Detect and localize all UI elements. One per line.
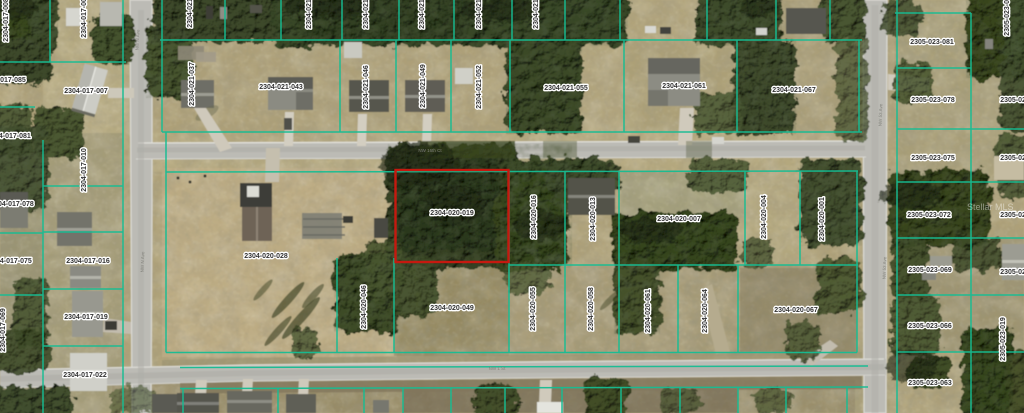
svg-text:2305-023-066: 2305-023-066 [908,323,952,330]
svg-text:NW 16th Ct: NW 16th Ct [418,148,442,153]
svg-text:2305-023-072: 2305-023-072 [907,212,951,219]
svg-text:2305-023-013: 2305-023-013 [1000,212,1024,219]
svg-text:2305-023-075: 2305-023-075 [911,155,955,162]
svg-text:2304-021-012: 2304-021-012 [306,0,313,29]
svg-text:2304-017-022: 2304-017-022 [63,372,107,379]
svg-text:NW 1 St: NW 1 St [489,366,507,371]
svg-text:2304-017-069: 2304-017-069 [0,308,7,352]
svg-text:2304-020-067: 2304-020-067 [774,307,818,314]
svg-text:2304-017-075: 2304-017-075 [0,258,32,265]
svg-text:2304-020-058: 2304-020-058 [588,287,595,331]
svg-text:2304-021-061: 2304-021-061 [662,83,706,90]
svg-text:2304-021-037: 2304-021-037 [189,62,196,106]
svg-text:2304-020-049: 2304-020-049 [430,305,474,312]
svg-text:2305-023-084: 2305-023-084 [1004,0,1011,36]
svg-text:2304-017-004: 2304-017-004 [81,0,88,38]
svg-text:2304-017-016: 2304-017-016 [66,258,110,265]
svg-text:NW N Ave: NW N Ave [140,251,146,272]
svg-text:2304-021-043: 2304-021-043 [259,84,303,91]
svg-text:2304-020-001: 2304-020-001 [819,197,826,241]
svg-text:2304-020-046: 2304-020-046 [361,285,368,329]
svg-text:NW 53 Ave: NW 53 Ave [882,256,888,279]
svg-text:2305-023-091: 2305-023-091 [1000,97,1024,104]
svg-text:2304-020-028: 2304-020-028 [244,253,288,260]
svg-text:2304-021-015: 2304-021-015 [363,0,370,29]
svg-text:2304-021-055: 2304-021-055 [544,85,588,92]
svg-text:2304-020-055: 2304-020-055 [530,287,537,331]
svg-text:2304-021-046: 2304-021-046 [363,65,370,109]
svg-text:2304-021-067: 2304-021-067 [772,87,816,94]
svg-text:2305-023-078: 2305-023-078 [911,97,955,104]
svg-text:2304-021-027: 2304-021-027 [187,0,194,28]
svg-text:NW 53 Ave: NW 53 Ave [878,103,884,126]
svg-text:2305-023-019: 2305-023-019 [1000,317,1007,361]
svg-text:2304-017-007: 2304-017-007 [64,88,108,95]
svg-text:2304-021-052: 2304-021-052 [476,65,483,109]
svg-text:2305-023-016: 2305-023-016 [1000,269,1024,276]
svg-text:2304-020-004: 2304-020-004 [761,195,768,239]
svg-text:2305-023-087: 2305-023-087 [1000,155,1024,162]
svg-text:2305-023-069: 2305-023-069 [908,267,952,274]
svg-text:2304-021-018: 2304-021-018 [419,0,426,29]
svg-text:2304-017-008: 2304-017-008 [3,0,10,42]
svg-text:2304-020-061: 2304-020-061 [645,289,652,333]
svg-text:2304-020-016: 2304-020-016 [531,195,538,239]
svg-text:2304-017-085: 2304-017-085 [0,77,26,84]
svg-text:2305-023-081: 2305-023-081 [910,39,954,46]
svg-text:2305-023-063: 2305-023-063 [908,380,952,387]
svg-text:2304-021-049: 2304-021-049 [420,64,427,108]
svg-text:2304-017-019: 2304-017-019 [64,314,108,321]
svg-text:2304-021-024: 2304-021-024 [533,0,540,29]
svg-text:2304-017-078: 2304-017-078 [0,201,34,208]
svg-text:2304-017-010: 2304-017-010 [81,148,88,192]
svg-text:Stellar MLS: Stellar MLS [967,202,1014,212]
svg-text:2304-020-013: 2304-020-013 [590,197,597,241]
svg-text:2304-020-064: 2304-020-064 [702,289,709,333]
svg-text:2304-021-021: 2304-021-021 [476,0,483,29]
svg-text:2304-020-007: 2304-020-007 [657,216,701,223]
svg-text:2304-017-081: 2304-017-081 [0,133,31,140]
svg-text:2304-020-019: 2304-020-019 [430,210,474,217]
